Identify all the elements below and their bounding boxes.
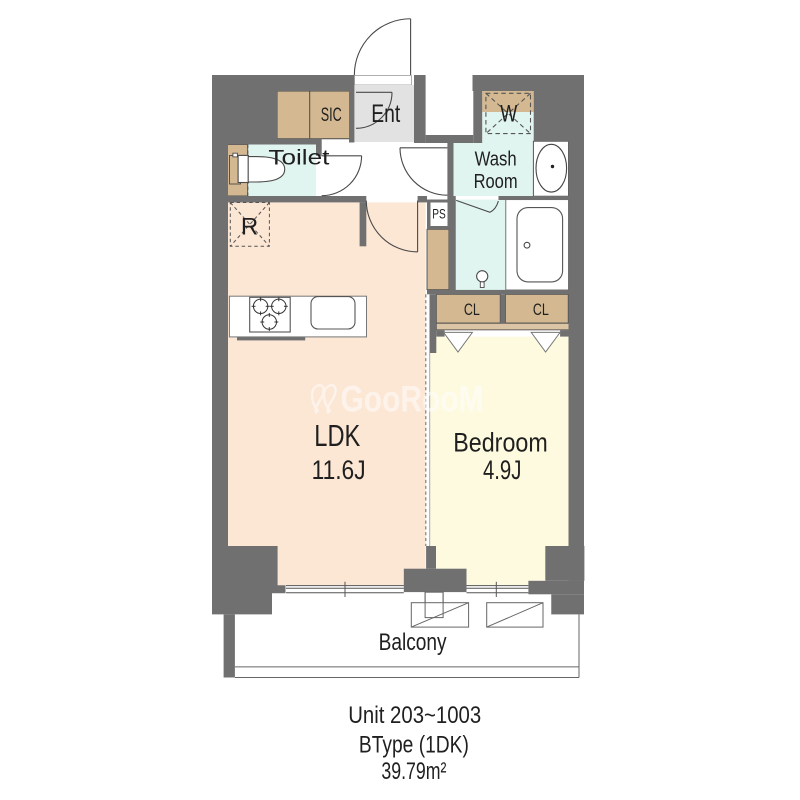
svg-text:Ent: Ent	[371, 100, 400, 128]
svg-text:SIC: SIC	[321, 105, 342, 126]
svg-text:4.9J: 4.9J	[483, 455, 522, 485]
svg-text:CL: CL	[533, 300, 549, 319]
svg-text:CL: CL	[464, 300, 480, 319]
svg-text:W: W	[500, 100, 517, 127]
svg-text:Unit 203~1003: Unit 203~1003	[348, 702, 481, 729]
svg-text:Balcony: Balcony	[379, 629, 447, 656]
svg-text:Bedroom: Bedroom	[453, 428, 548, 458]
svg-text:PS: PS	[432, 207, 446, 222]
svg-text:LDK: LDK	[314, 418, 360, 453]
svg-text:BType (1DK): BType (1DK)	[359, 732, 469, 759]
svg-text:Toilet: Toilet	[268, 147, 329, 170]
svg-text:39.79m²: 39.79m²	[381, 758, 446, 785]
svg-text:Wash: Wash	[475, 149, 517, 171]
svg-text:11.6J: 11.6J	[312, 455, 366, 485]
svg-text:GooRooM: GooRooM	[341, 379, 484, 420]
svg-text:R: R	[241, 214, 258, 241]
svg-text:Room: Room	[474, 171, 518, 193]
